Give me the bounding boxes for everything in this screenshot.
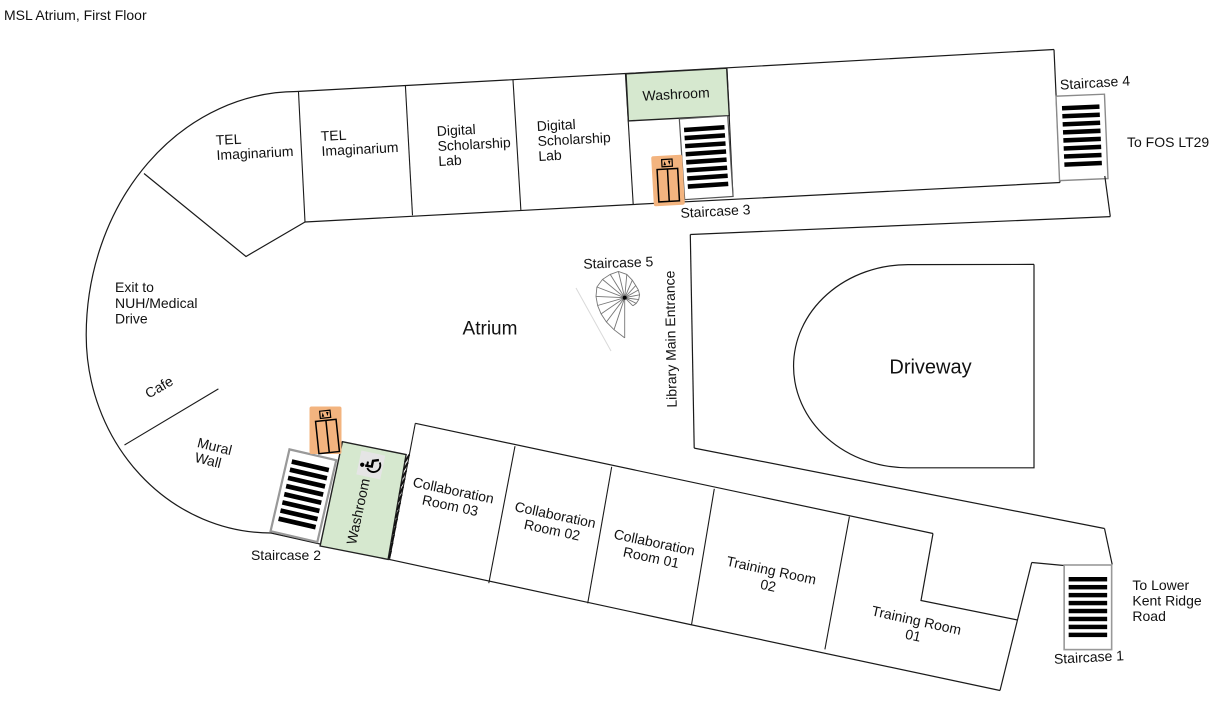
svg-text:To FOS LT29: To FOS LT29: [1127, 134, 1209, 150]
svg-text:MSL Atrium, First Floor: MSL Atrium, First Floor: [4, 7, 147, 23]
svg-text:Driveway: Driveway: [889, 357, 971, 379]
svg-text:Staircase 5: Staircase 5: [583, 253, 654, 271]
svg-text:Library Main Entrance: Library Main Entrance: [661, 270, 679, 407]
svg-text:Atrium: Atrium: [463, 319, 518, 340]
svg-text:Staircase 2: Staircase 2: [251, 547, 321, 563]
